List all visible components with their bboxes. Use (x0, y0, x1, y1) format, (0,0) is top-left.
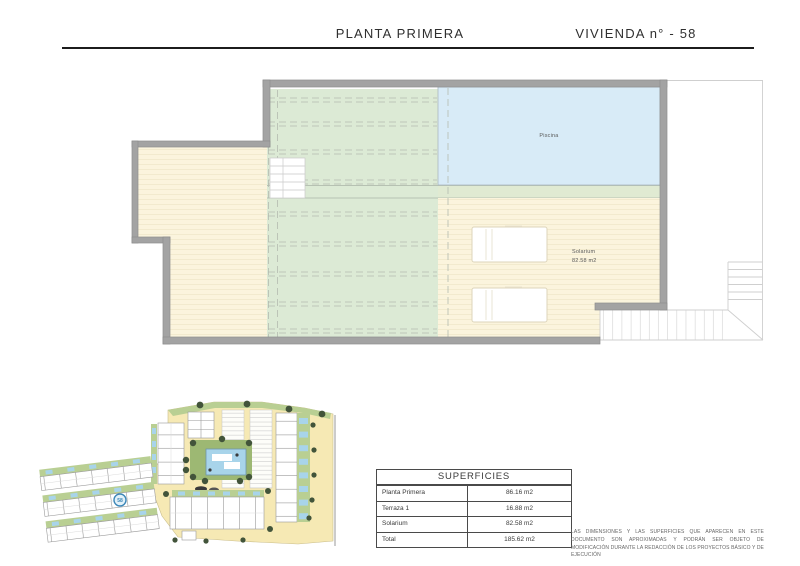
surface-table-title: SUPERFICIES (377, 470, 571, 485)
row-label: Total (377, 533, 468, 548)
floor-plan: Piscina Solarium 82.58 m2 (110, 70, 770, 355)
table-row: Planta Primera 86.16 m2 (377, 485, 571, 501)
table-row: Terraza 1 16.88 m2 (377, 501, 571, 517)
row-label: Terraza 1 (377, 502, 468, 517)
solarium-area-label: 82.58 m2 (572, 258, 597, 264)
row-value: 86.16 m2 (468, 486, 571, 501)
sun-lounger (472, 287, 547, 322)
pool-island (183, 436, 252, 484)
disclaimer-text: LAS DIMENSIONES Y LAS SUPERFICIES QUE AP… (571, 529, 764, 560)
table-row: Solarium 82.58 m2 (377, 516, 571, 532)
site-left-wing (39, 456, 159, 542)
unit-marker-label: 58 (117, 498, 123, 504)
row-value: 82.58 m2 (468, 517, 571, 532)
plan-sheet: PLANTA PRIMERA VIVIENDA n° - 58 (0, 0, 800, 566)
row-value: 185.62 m2 (468, 533, 571, 548)
sun-lounger (472, 226, 547, 262)
page-title-floor: PLANTA PRIMERA (300, 26, 500, 41)
site-plan: 58 (30, 396, 342, 552)
surface-table: SUPERFICIES Planta Primera 86.16 m2 Terr… (376, 469, 572, 548)
table-row: Total 185.62 m2 (377, 532, 571, 548)
header-divider (62, 47, 754, 49)
stairs-interior (270, 158, 305, 198)
solarium-label: Solarium (572, 249, 596, 255)
pool-label: Piscina (539, 133, 559, 139)
pool-deck-strip (438, 185, 660, 198)
row-label: Solarium (377, 517, 468, 532)
site-main-block (151, 401, 333, 544)
row-value: 16.88 m2 (468, 502, 571, 517)
unit-marker: 58 (114, 494, 126, 506)
page-title-unit: VIVIENDA n° - 58 (546, 26, 726, 41)
row-label: Planta Primera (377, 486, 468, 501)
